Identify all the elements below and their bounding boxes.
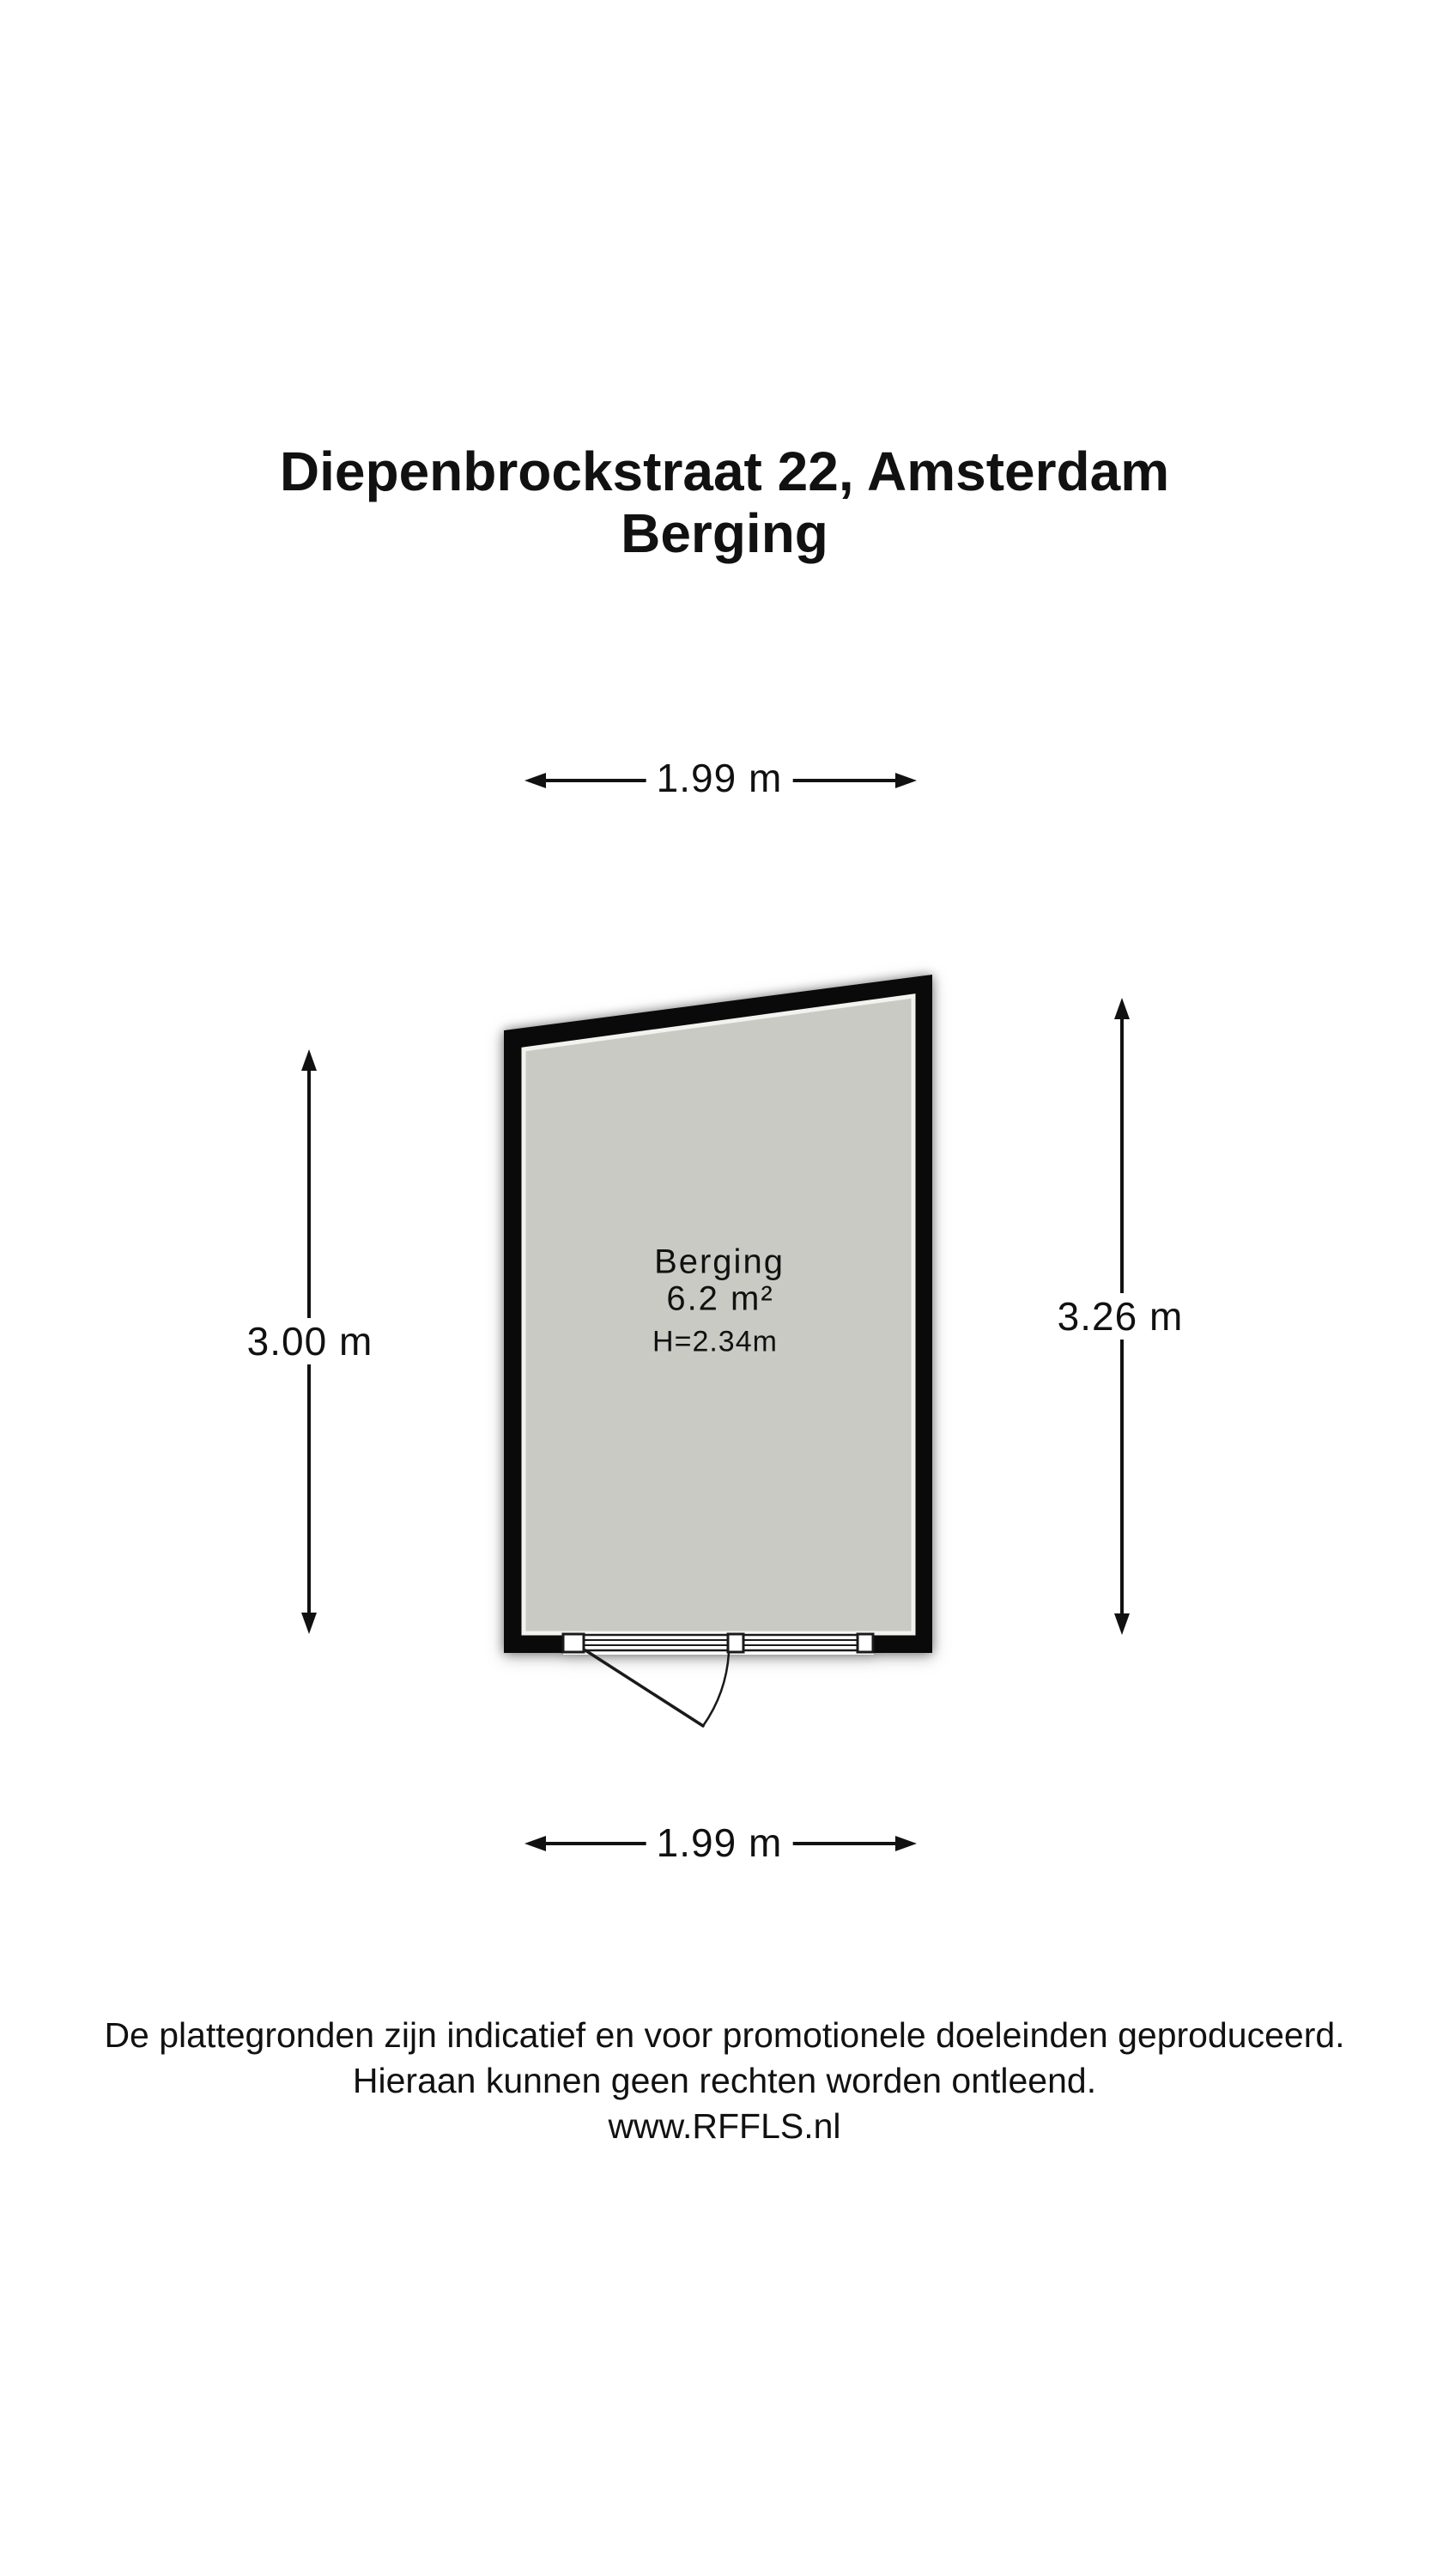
room-name-label: Berging [654, 1243, 785, 1282]
dimension-label-right: 3.26 m [1047, 1293, 1194, 1340]
disclaimer-line-2: Hieraan kunnen geen rechten worden ontle… [0, 2058, 1449, 2104]
dimension-label-top: 1.99 m [646, 755, 793, 801]
arrowhead-down [301, 1613, 317, 1634]
floorplan-page: Diepenbrockstraat 22, Amsterdam Berging [0, 0, 1449, 2576]
arrowhead-right [895, 773, 917, 788]
arrowhead-down [1114, 1613, 1130, 1635]
side-panel [743, 1635, 858, 1650]
dimension-label-left: 3.00 m [237, 1318, 384, 1364]
door-swing [585, 1650, 729, 1726]
door-post-middle [728, 1634, 743, 1652]
footer-disclaimer: De plattegronden zijn indicatief en voor… [0, 2013, 1449, 2149]
arrowhead-right [895, 1836, 917, 1851]
door-jamb-left [563, 1634, 584, 1652]
room-ceiling-height-label: H=2.34m [652, 1326, 778, 1359]
dimension-label-bottom: 1.99 m [646, 1820, 793, 1866]
arrowhead-left [524, 773, 546, 788]
arrowhead-up [1114, 998, 1130, 1019]
arrowhead-left [524, 1836, 546, 1851]
door-leaf-open [585, 1650, 703, 1726]
disclaimer-line-1: De plattegronden zijn indicatief en voor… [0, 2013, 1449, 2058]
door-swing-arc [703, 1653, 729, 1726]
door-jamb-right [858, 1634, 873, 1652]
door-panel [584, 1635, 728, 1650]
room-area-label: 6.2 m² [666, 1280, 773, 1319]
footer-website: www.RFFLS.nl [0, 2104, 1449, 2149]
arrowhead-up [301, 1049, 317, 1071]
